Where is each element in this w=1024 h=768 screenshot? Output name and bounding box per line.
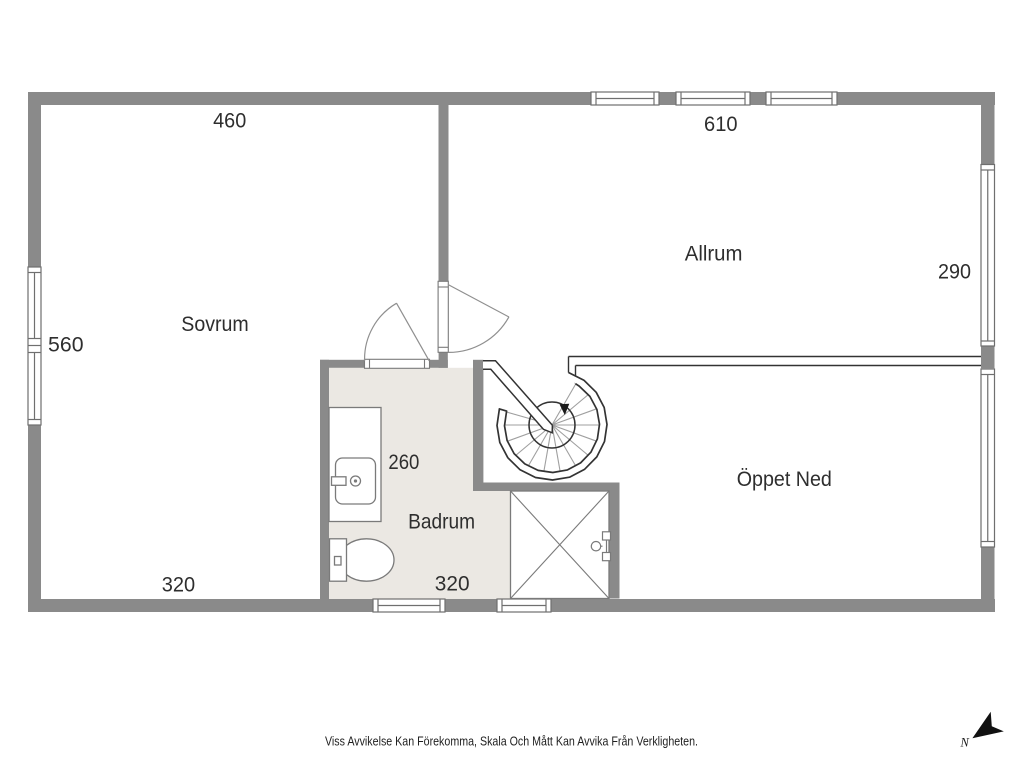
svg-text:610: 610	[704, 112, 738, 136]
svg-text:Sovrum: Sovrum	[181, 312, 249, 336]
svg-text:Allrum: Allrum	[685, 242, 743, 266]
svg-text:320: 320	[162, 573, 196, 597]
svg-text:Badrum: Badrum	[408, 510, 475, 534]
svg-text:260: 260	[388, 450, 419, 474]
svg-text:N: N	[960, 736, 970, 750]
svg-text:460: 460	[213, 108, 246, 132]
svg-text:290: 290	[938, 260, 971, 284]
svg-text:320: 320	[435, 572, 470, 596]
svg-text:560: 560	[48, 333, 84, 357]
svg-text:Öppet Ned: Öppet Ned	[737, 467, 832, 491]
svg-text:Viss Avvikelse Kan Förekomma,: Viss Avvikelse Kan Förekomma, Skala Och …	[325, 734, 698, 749]
